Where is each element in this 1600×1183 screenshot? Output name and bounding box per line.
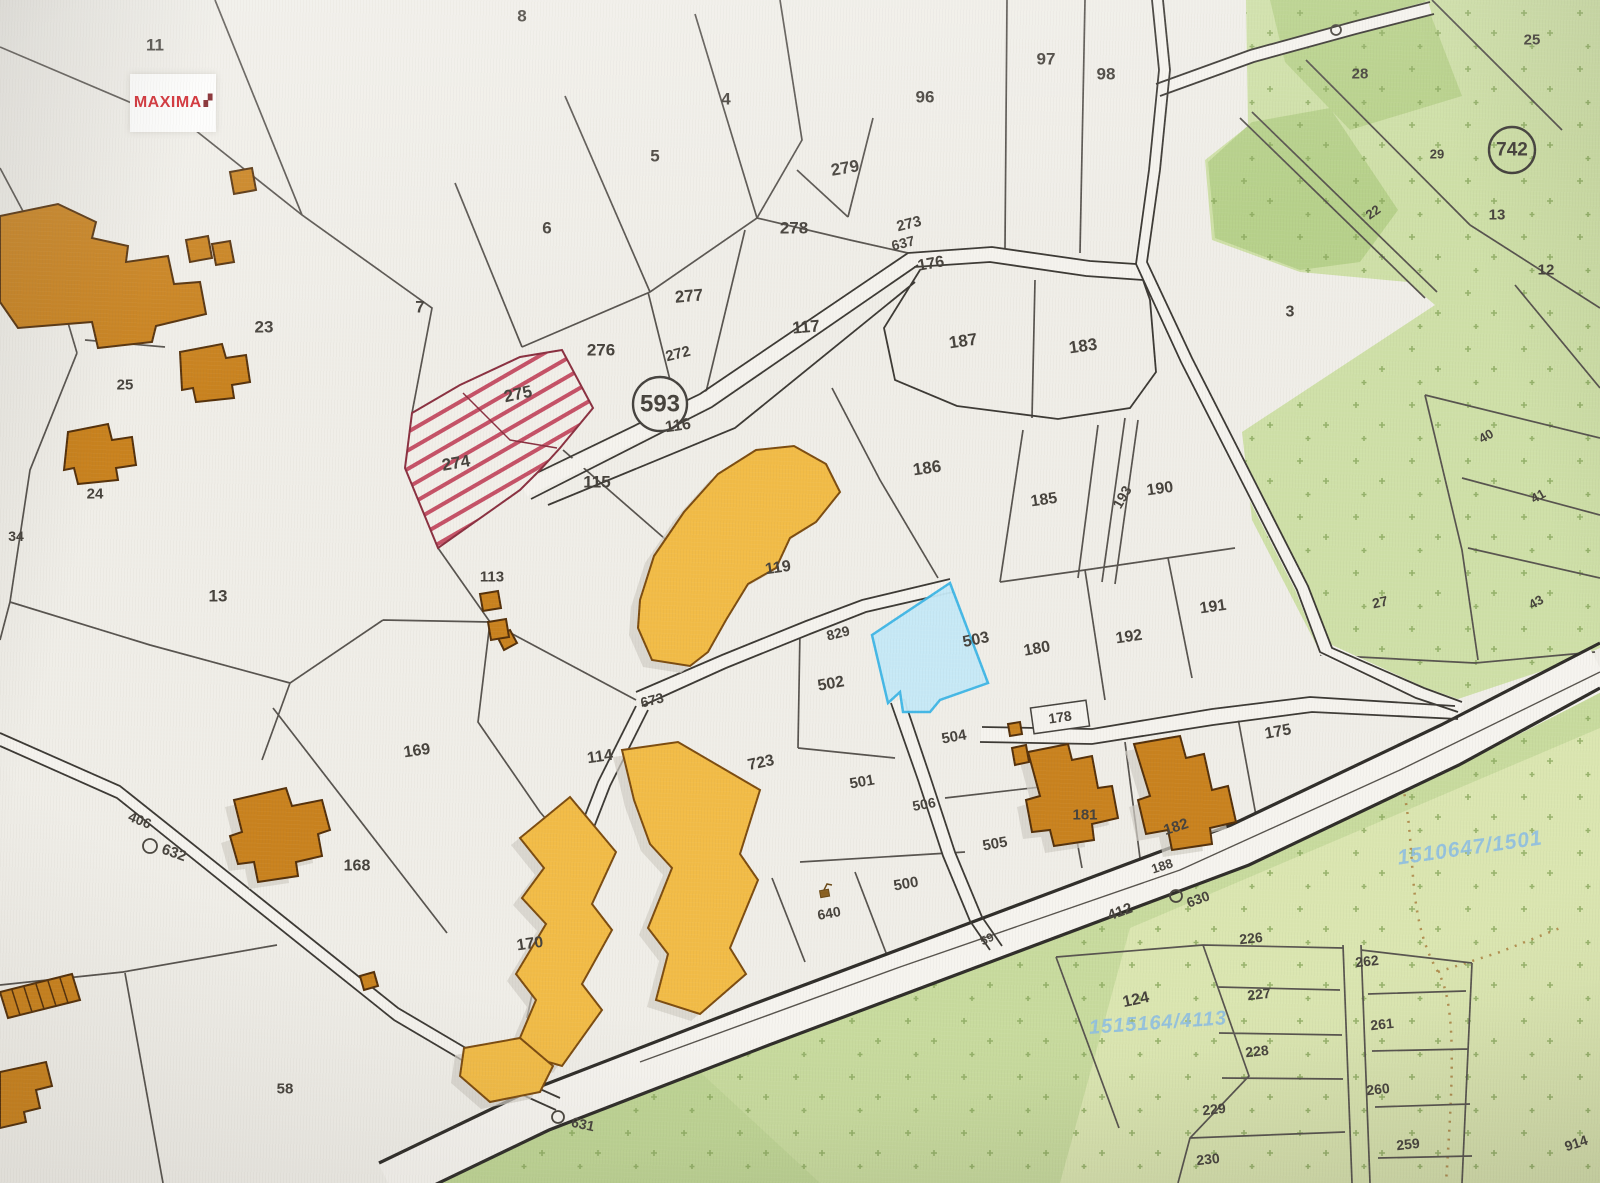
parcel-label-29: 29 — [1430, 147, 1444, 162]
parcel-label-11: 11 — [146, 36, 164, 55]
svg-text:8: 8 — [517, 7, 526, 26]
svg-text:119: 119 — [764, 558, 792, 578]
parcel-label-113: 113 — [480, 569, 504, 586]
svg-text:178: 178 — [1047, 707, 1073, 726]
svg-text:3: 3 — [1286, 304, 1295, 321]
svg-text:168: 168 — [344, 858, 371, 875]
parcel-label-229: 229 — [1202, 1100, 1227, 1118]
parcel-label-259: 259 — [1396, 1135, 1421, 1153]
parcel-label-277: 277 — [674, 285, 704, 306]
svg-text:261: 261 — [1370, 1015, 1395, 1033]
parcel-label-227: 227 — [1247, 985, 1272, 1003]
svg-text:25: 25 — [117, 377, 134, 394]
svg-text:25: 25 — [1524, 32, 1541, 49]
svg-text:13: 13 — [209, 587, 228, 606]
parcel-label-230: 230 — [1196, 1150, 1221, 1168]
parcel-label-6: 6 — [542, 219, 551, 238]
svg-text:97: 97 — [1037, 50, 1056, 69]
parcel-label-12: 12 — [1538, 262, 1555, 279]
svg-text:262: 262 — [1355, 952, 1380, 970]
svg-text:229: 229 — [1202, 1100, 1227, 1118]
svg-text:11: 11 — [146, 36, 164, 55]
svg-text:742: 742 — [1496, 140, 1528, 161]
label-13-ne: 13 — [1489, 207, 1506, 224]
parcel-label-114: 114 — [586, 747, 614, 767]
svg-text:260: 260 — [1366, 1080, 1391, 1098]
parcel-label-3: 3 — [1286, 304, 1295, 321]
svg-text:186: 186 — [912, 457, 943, 480]
svg-text:277: 277 — [674, 285, 704, 306]
parcel-label-261: 261 — [1370, 1015, 1395, 1033]
parcel-label-226: 226 — [1239, 929, 1264, 947]
svg-text:6: 6 — [542, 219, 551, 238]
parcel-label-181: 181 — [1072, 807, 1097, 824]
parcel-label-187: 187 — [948, 330, 979, 353]
svg-text:278: 278 — [780, 219, 808, 238]
parcel-label-4: 4 — [721, 90, 731, 109]
parcel-label-23: 23 — [255, 318, 274, 337]
svg-text:7: 7 — [415, 298, 424, 317]
parcel-label-28: 28 — [1352, 66, 1369, 83]
parcel-label-178: 178 — [1047, 707, 1073, 726]
svg-text:228: 228 — [1245, 1042, 1270, 1060]
svg-text:276: 276 — [587, 341, 615, 360]
svg-text:593: 593 — [640, 391, 680, 418]
svg-text:115: 115 — [583, 473, 610, 492]
maxima-logo: MAXIMA ▞ — [130, 74, 216, 132]
parcel-label-186: 186 — [912, 457, 943, 480]
svg-text:114: 114 — [586, 747, 614, 767]
svg-text:227: 227 — [1247, 985, 1272, 1003]
parcel-label-97: 97 — [1037, 50, 1056, 69]
svg-text:24: 24 — [87, 486, 104, 503]
label-13-w: 13 — [209, 587, 228, 606]
svg-text:259: 259 — [1396, 1135, 1421, 1153]
parcel-label-8: 8 — [517, 7, 526, 26]
svg-text:183: 183 — [1068, 335, 1099, 358]
svg-text:98: 98 — [1097, 65, 1116, 84]
parcel-label-228: 228 — [1245, 1042, 1270, 1060]
parcel-label-116: 116 — [664, 416, 692, 436]
svg-text:181: 181 — [1072, 807, 1097, 824]
parcel-label-183: 183 — [1068, 335, 1099, 358]
svg-text:58: 58 — [277, 1081, 294, 1098]
svg-text:29: 29 — [1430, 147, 1444, 162]
svg-text:117: 117 — [792, 316, 821, 337]
svg-text:187: 187 — [948, 330, 979, 353]
cadastral-map-canvas[interactable]: 1184969798527925282974222131262782736371… — [0, 0, 1600, 1183]
parcel-label-58: 58 — [277, 1081, 294, 1098]
svg-text:12: 12 — [1538, 262, 1555, 279]
parcel-label-117: 117 — [792, 316, 821, 337]
parcel-label-96: 96 — [916, 88, 935, 107]
parcel-label-119: 119 — [764, 558, 792, 578]
svg-text:23: 23 — [255, 318, 274, 337]
svg-text:5: 5 — [650, 147, 659, 166]
label-25-w: 25 — [117, 377, 134, 394]
svg-text:113: 113 — [480, 569, 504, 586]
parcel-label-5: 5 — [650, 147, 659, 166]
cadastral-map-screenshot: 1184969798527925282974222131262782736371… — [0, 0, 1600, 1183]
svg-text:116: 116 — [664, 416, 692, 436]
svg-text:28: 28 — [1352, 66, 1369, 83]
svg-text:226: 226 — [1239, 929, 1264, 947]
svg-text:230: 230 — [1196, 1150, 1221, 1168]
parcel-label-115: 115 — [583, 473, 610, 492]
parcel-label-260: 260 — [1366, 1080, 1391, 1098]
svg-text:96: 96 — [916, 88, 935, 107]
parcel-label-168: 168 — [344, 858, 371, 875]
svg-text:34: 34 — [8, 528, 24, 544]
parcel-label-7: 7 — [415, 298, 424, 317]
logo-text: MAXIMA — [134, 94, 202, 112]
parcel-label-24: 24 — [87, 486, 104, 503]
parcel-label-98: 98 — [1097, 65, 1116, 84]
svg-text:4: 4 — [721, 90, 731, 109]
svg-text:13: 13 — [1489, 207, 1506, 224]
parcel-label-34: 34 — [8, 528, 24, 544]
logo-mark-icon: ▞ — [204, 94, 212, 107]
label-25-ne: 25 — [1524, 32, 1541, 49]
parcel-label-262: 262 — [1355, 952, 1380, 970]
parcel-label-276: 276 — [587, 341, 615, 360]
parcel-label-278: 278 — [780, 219, 808, 238]
